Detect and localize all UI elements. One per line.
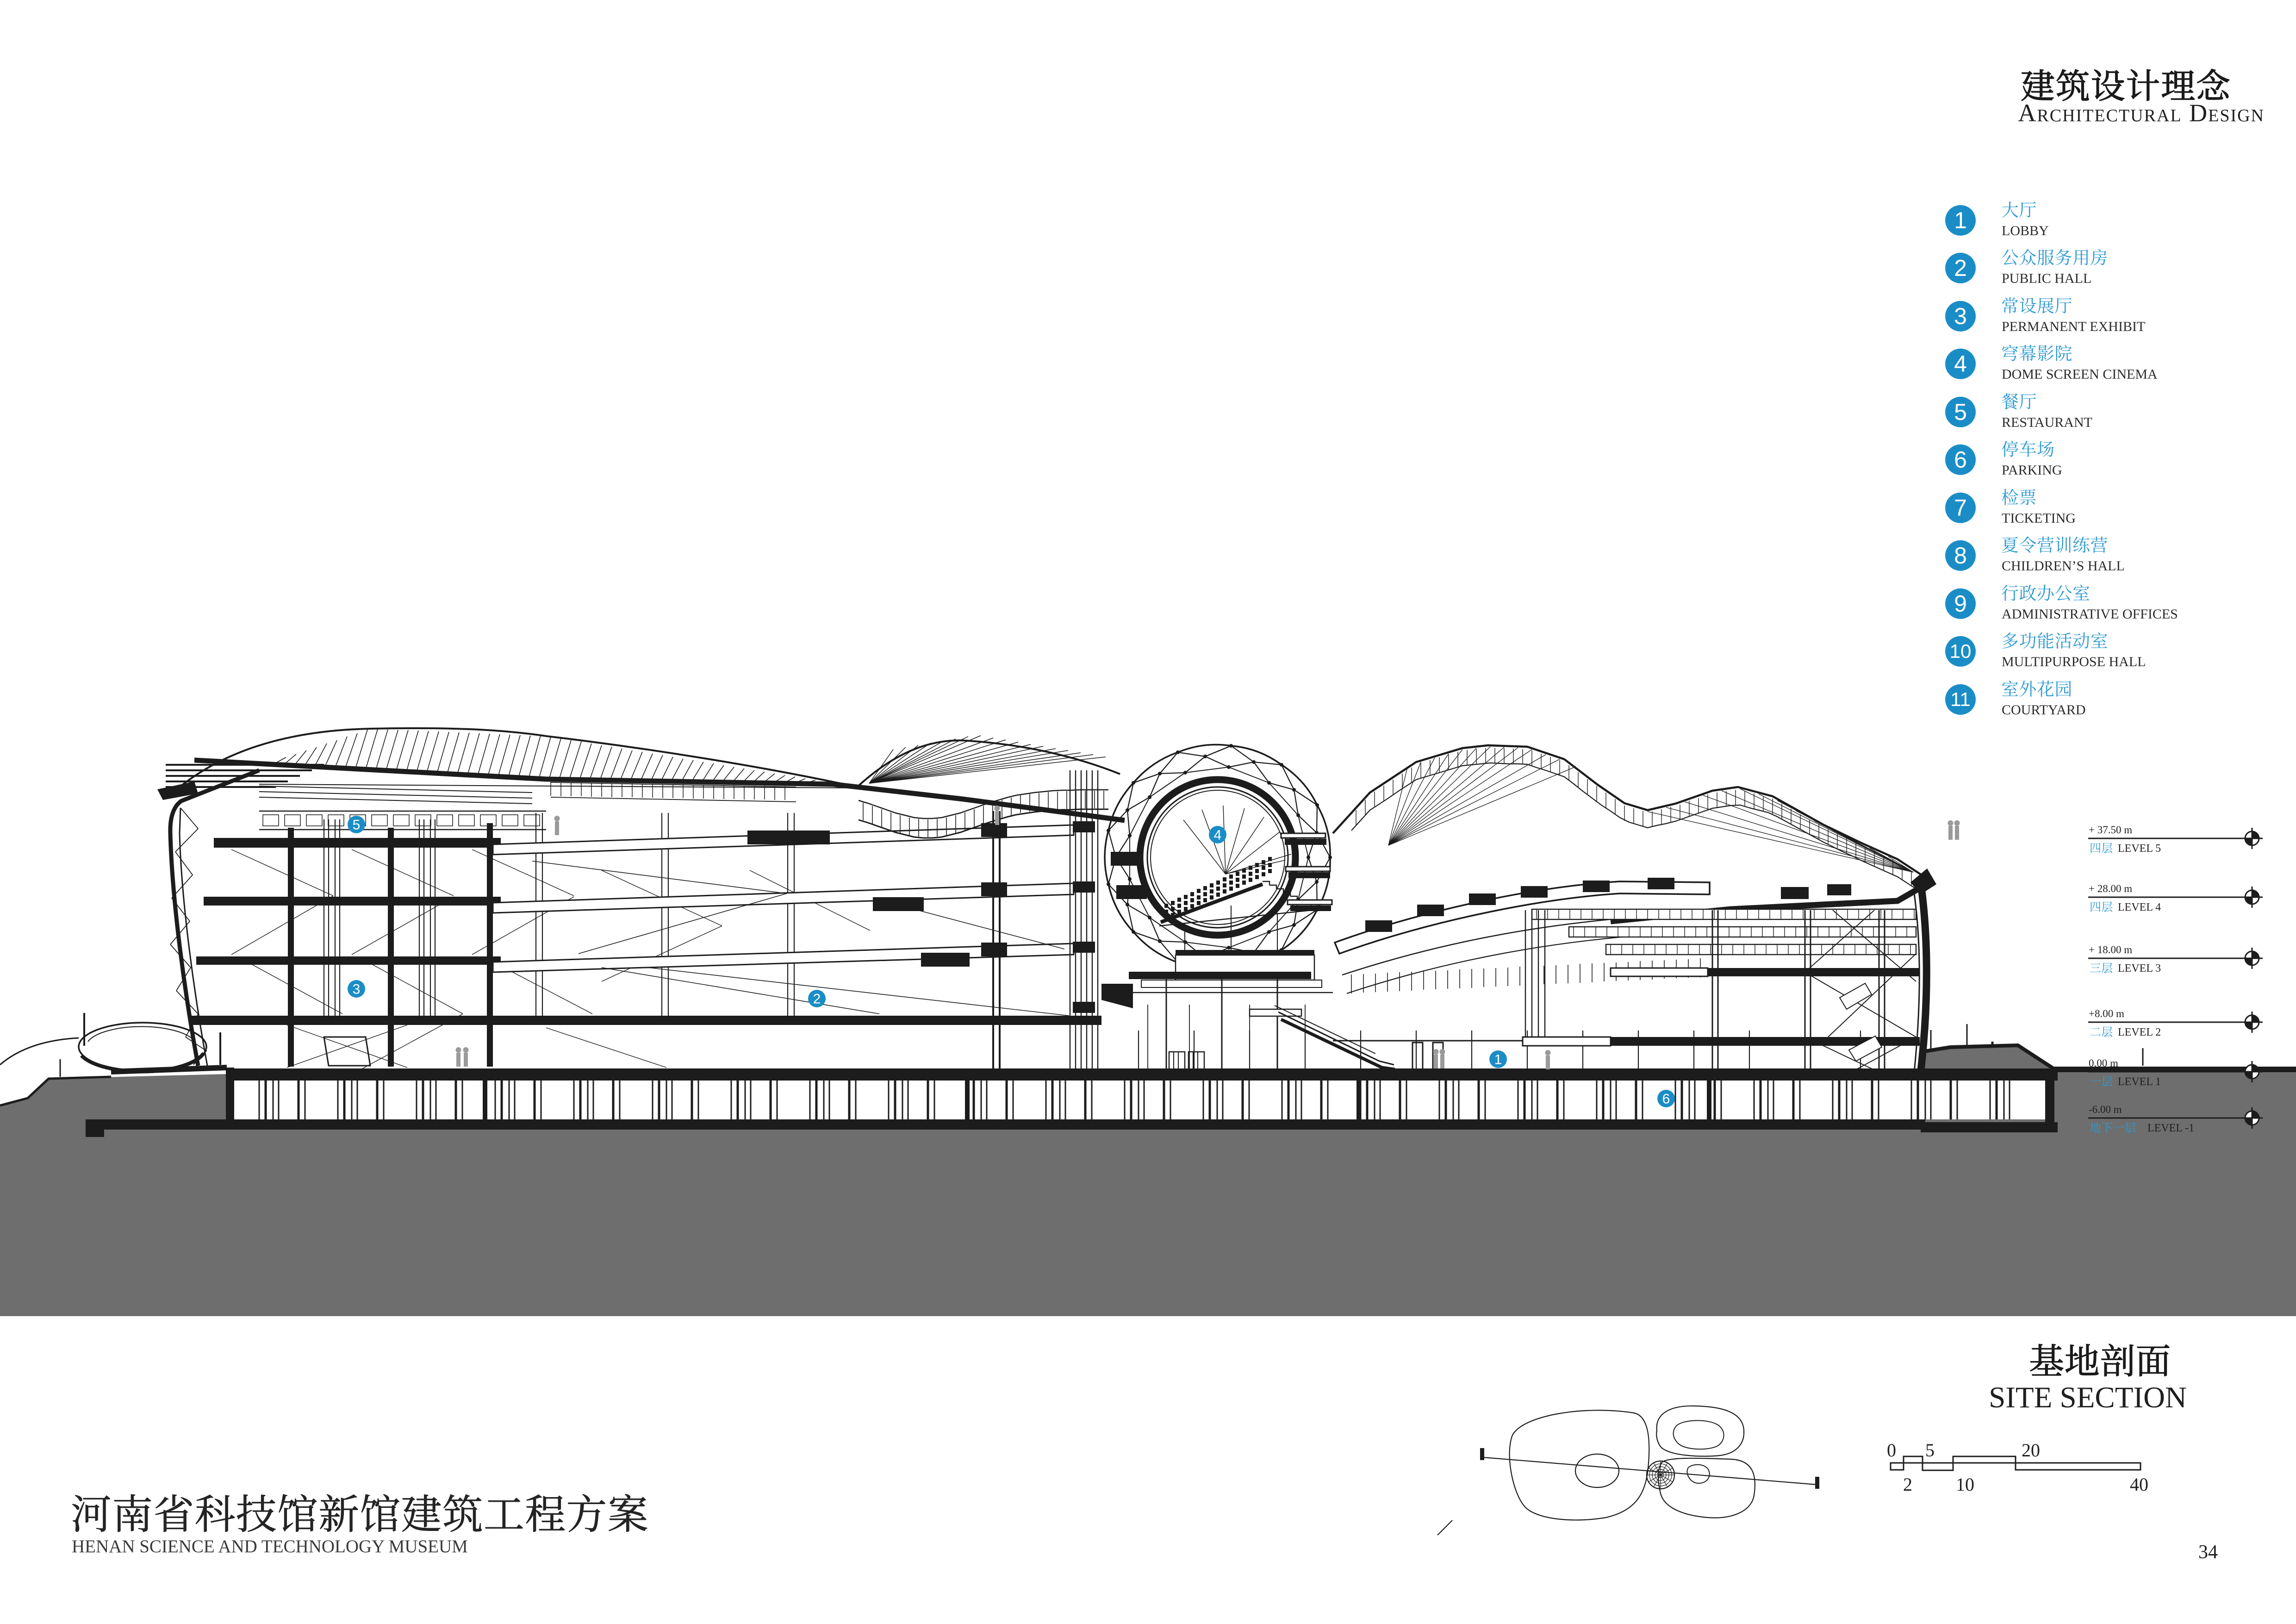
svg-text:3: 3 xyxy=(353,982,361,997)
svg-text:1: 1 xyxy=(1494,1052,1502,1068)
svg-text:2: 2 xyxy=(813,992,821,1007)
svg-text:6: 6 xyxy=(1662,1092,1670,1107)
svg-text:5: 5 xyxy=(353,818,361,833)
svg-text:4: 4 xyxy=(1214,828,1222,843)
